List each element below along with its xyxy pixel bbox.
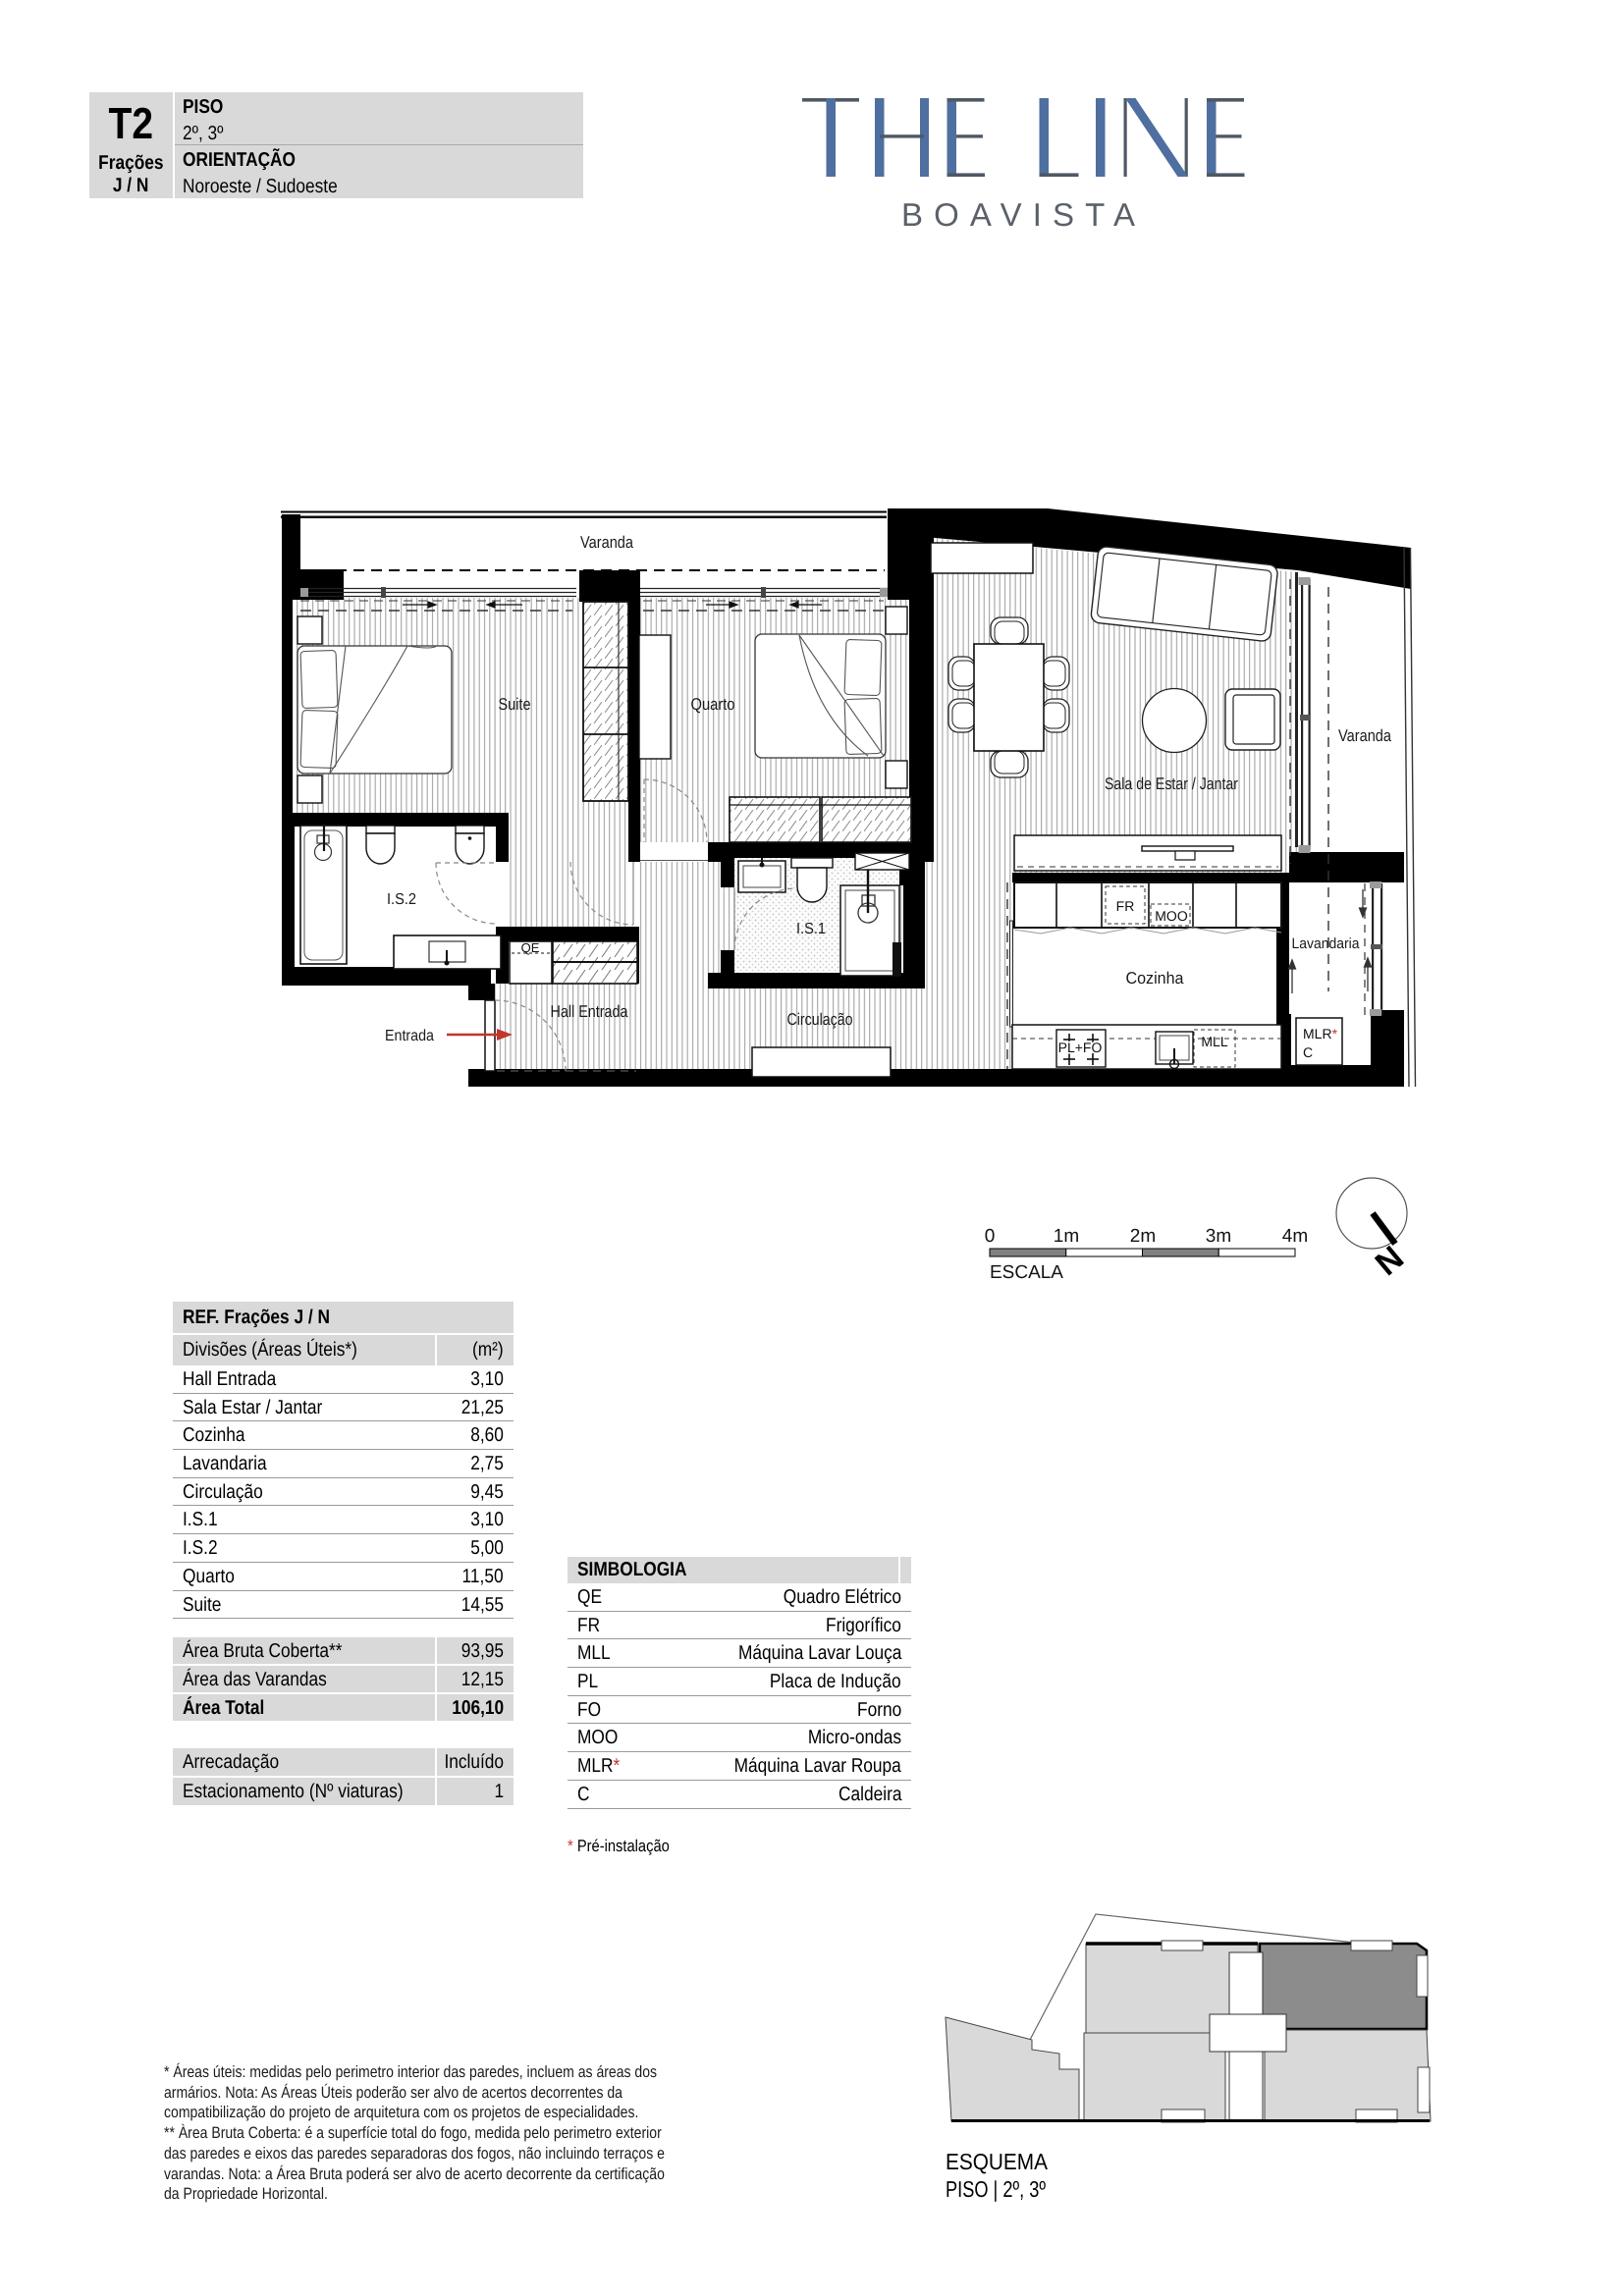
svg-text:PISO | 2º, 3º: PISO | 2º, 3º bbox=[946, 2176, 1046, 2202]
svg-text:ESQUEMA: ESQUEMA bbox=[946, 2149, 1049, 2174]
